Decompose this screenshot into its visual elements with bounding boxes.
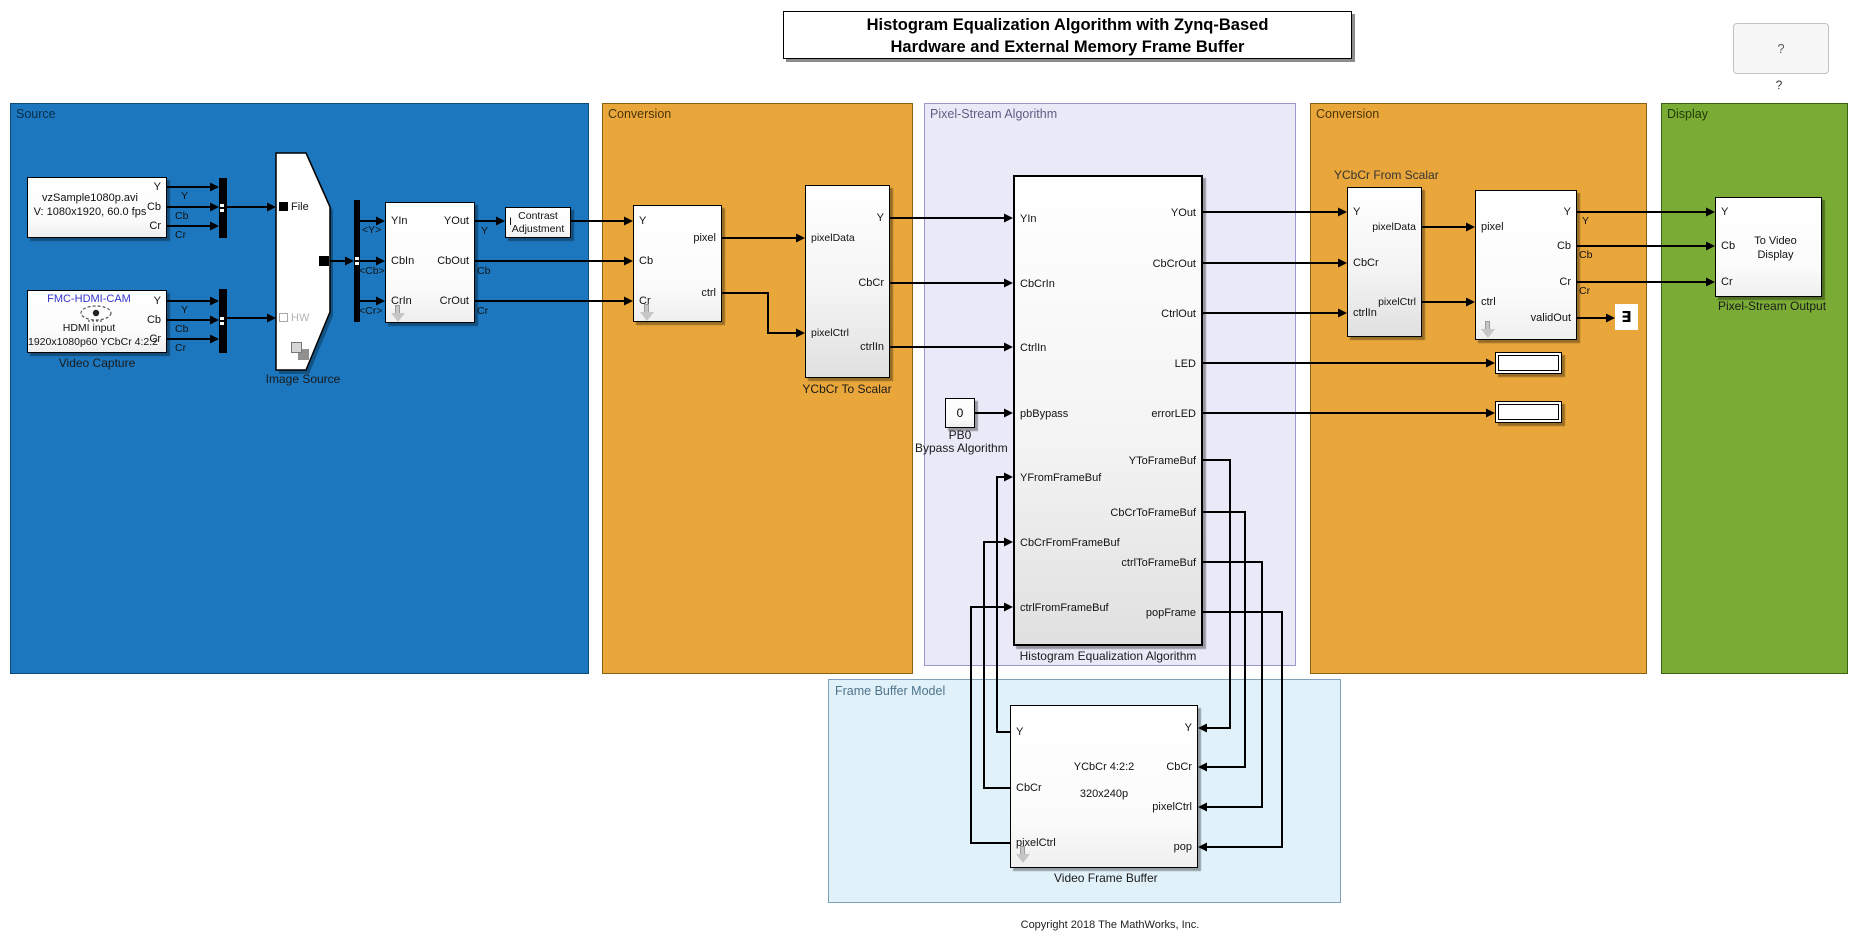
pb0-caption-1: PB0	[930, 428, 990, 442]
port-label-y: Y	[154, 182, 161, 193]
contrast-line2: Adjustment	[506, 223, 570, 235]
port-label-ctrlin: ctrlIn	[1353, 308, 1377, 319]
port-label-cbout: CbOut	[437, 256, 469, 267]
signal-label-disp-cr: Cr	[1579, 285, 1590, 297]
port-label-pixelctrl: pixelCtrl	[1378, 297, 1416, 308]
port-label-ctrl: ctrl	[701, 288, 716, 299]
port-label-ctrlfromfb: ctrlFromFrameBuf	[1020, 603, 1109, 614]
mux-source-file[interactable]	[219, 178, 227, 238]
bus-selector[interactable]	[354, 200, 360, 322]
led-display-inner	[1498, 355, 1559, 371]
port-label-cbcr: CbCr	[858, 278, 884, 289]
port-label-ctrltofb: ctrlToFrameBuf	[1121, 558, 1196, 569]
port-label-y: Y	[154, 296, 161, 307]
port-label-cr: Cr	[1559, 277, 1571, 288]
port-label-cb: Cb	[1557, 241, 1571, 252]
port-label-yin: YIn	[1020, 214, 1037, 225]
signal-label-src1-cb: Cb	[175, 210, 188, 222]
block-contrast-adjustment[interactable]: I Contrast Adjustment	[505, 207, 571, 238]
block-ycbcr422-select[interactable]: YIn CbIn CrIn YOut CbOut CrOut	[385, 202, 475, 323]
image-source-out-square	[319, 256, 329, 266]
port-label-ctrlin: CtrlIn	[1020, 343, 1046, 354]
block-video-frame-buffer[interactable]: Y CbCr pixelCtrl Y CbCr pixelCtrl pop YC…	[1010, 705, 1198, 868]
tvd-line1: To Video	[1730, 235, 1821, 247]
variant-arrow-icon	[1481, 321, 1496, 338]
vfb-line2: 320x240p	[1011, 788, 1197, 800]
port-label-cb: Cb	[147, 202, 161, 213]
file-port-label: File	[291, 201, 309, 213]
image-source-caption: Image Source	[253, 372, 353, 386]
signal-label-bus-cb: <Cb>	[359, 265, 385, 277]
port-label-cb: Cb	[147, 315, 161, 326]
port-label-crout: CrOut	[440, 296, 469, 307]
port-label-errorled: errorLED	[1151, 409, 1196, 420]
copyright-note: Copyright 2018 The MathWorks, Inc.	[1010, 919, 1210, 931]
signal-label-src2-cb: Cb	[175, 323, 188, 335]
signal-label-conv-cr: Cr	[477, 305, 488, 317]
signal-label-conv-y: Y	[481, 225, 488, 237]
signal-label-src2-cr: Cr	[175, 342, 186, 354]
port-label-ctrl: ctrl	[1481, 297, 1496, 308]
port-label-cr: Cr	[149, 221, 161, 232]
port-label-y: Y	[877, 213, 884, 224]
signal-label-src2-y: Y	[181, 304, 188, 316]
port-label-y: Y	[1564, 207, 1571, 218]
port-label-cbcrtofb: CbCrToFrameBuf	[1110, 508, 1196, 519]
pb0-caption-2: Bypass Algorithm	[915, 441, 1005, 455]
port-label-y-in: Y	[1185, 723, 1192, 734]
block-to-video-display[interactable]: Y Cb Cr To Video Display	[1715, 197, 1822, 297]
variant-arrow-icon	[1016, 846, 1031, 863]
mux-notch	[220, 204, 224, 207]
mux-notch	[220, 322, 224, 325]
contrast-line1: Contrast	[506, 210, 570, 222]
media-file-info: V: 1080x1920, 60.0 fps	[28, 206, 152, 218]
port-label-pixelctrl-in: pixelCtrl	[1152, 802, 1192, 813]
port-label-yout: YOut	[444, 216, 469, 227]
video-frame-buffer-caption: Video Frame Buffer	[1054, 871, 1154, 885]
camera-icon	[79, 305, 113, 323]
port-label-cbin: CbIn	[391, 256, 414, 267]
tvd-line2: Display	[1730, 249, 1821, 261]
signal-label-src1-y: Y	[181, 190, 188, 202]
ycbcr-to-scalar-caption: YCbCr To Scalar	[797, 382, 897, 396]
image-icon-front	[291, 342, 302, 353]
signal-label-src1-cr: Cr	[175, 229, 186, 241]
port-label-led: LED	[1175, 359, 1196, 370]
pixel-stream-output-caption: Pixel-Stream Output	[1718, 299, 1818, 313]
ycbcr-from-scalar-title: YCbCr From Scalar	[1334, 168, 1434, 182]
port-label-y: Y	[1016, 727, 1023, 738]
variant-arrow-icon	[640, 304, 655, 321]
port-label-pbbypass: pbBypass	[1020, 409, 1068, 420]
port-label-pixeldata: pixelData	[811, 233, 855, 244]
block-video-capture[interactable]: FMC-HDMI-CAM HDMI input 1920x1080p60 YCb…	[27, 290, 167, 353]
terminator-icon[interactable]: ∃	[1615, 304, 1638, 330]
video-capture-caption: Video Capture	[47, 356, 147, 370]
signal-label-disp-y: Y	[1582, 215, 1589, 227]
histeq-caption: Histogram Equalization Algorithm	[1008, 649, 1208, 663]
mux-notch	[220, 209, 224, 212]
port-label-yout: YOut	[1171, 208, 1196, 219]
signal-label-bus-y: <Y>	[362, 224, 381, 236]
mux-notch	[220, 317, 224, 320]
mux-notch	[355, 257, 359, 260]
variant-arrow-icon	[391, 305, 406, 322]
led-display[interactable]	[1495, 352, 1562, 374]
port-label-pixel: pixel	[1481, 222, 1504, 233]
block-histogram-equalization[interactable]: YIn CbCrIn CtrlIn pbBypass YFromFrameBuf…	[1013, 175, 1203, 646]
port-label-ytofb: YToFrameBuf	[1129, 456, 1196, 467]
signal-label-bus-cr: <Cr>	[359, 305, 382, 317]
port-label-y: Y	[1721, 207, 1728, 218]
signal-label-disp-cb: Cb	[1579, 249, 1592, 261]
port-label-y: Y	[1353, 207, 1360, 218]
simulink-model-canvas: Source Conversion Pixel-Stream Algorithm…	[0, 0, 1854, 944]
port-label-cr: Cr	[149, 334, 161, 345]
signal-label-conv-cb: Cb	[477, 265, 490, 277]
port-label-cbcrin: CbCrIn	[1020, 279, 1055, 290]
port-label-cbcrfromfb: CbCrFromFrameBuf	[1020, 538, 1120, 549]
port-label-cr: Cr	[1721, 277, 1733, 288]
block-frame-to-pixels[interactable]: Y Cb Cr pixel ctrl	[633, 205, 722, 322]
port-label-yin: YIn	[391, 216, 408, 227]
port-label-pixeldata: pixelData	[1372, 222, 1416, 233]
block-ycbcr-to-scalar[interactable]: pixelData pixelCtrl Y CbCr ctrlIn	[805, 185, 890, 378]
port-label-yfromfb: YFromFrameBuf	[1020, 473, 1101, 484]
port-label-pixel: pixel	[693, 233, 716, 244]
port-label-cbcr: CbCr	[1353, 258, 1379, 269]
block-ycbcr-from-scalar[interactable]: Y CbCr ctrlIn pixelData pixelCtrl	[1347, 187, 1422, 337]
block-from-multimedia-file[interactable]: vzSample1080p.avi V: 1080x1920, 60.0 fps…	[27, 177, 167, 238]
port-label-pixelctrl: pixelCtrl	[811, 328, 849, 339]
port-label-validout: validOut	[1531, 313, 1571, 324]
port-label-popframe: popFrame	[1146, 608, 1196, 619]
hw-port-square[interactable]	[279, 313, 288, 322]
error-led-display[interactable]	[1495, 401, 1562, 423]
video-capture-line2: 1920x1080p60 YCbCr 4:2:2	[28, 336, 158, 348]
port-label-ctrlin: ctrlIn	[860, 342, 884, 353]
port-label-ctrlout: CtrlOut	[1161, 309, 1196, 320]
media-file-name: vzSample1080p.avi	[28, 192, 152, 204]
file-port-square[interactable]	[279, 202, 288, 211]
port-label-cb: Cb	[639, 256, 653, 267]
constant-pb0[interactable]: 0	[945, 398, 975, 428]
video-capture-device: FMC-HDMI-CAM	[28, 293, 150, 305]
port-label-y: Y	[639, 216, 646, 227]
hw-port-label: HW	[291, 312, 309, 324]
vfb-line1: YCbCr 4:2:2	[1011, 761, 1197, 773]
led-display-inner	[1498, 404, 1559, 420]
mux-video-capture[interactable]	[219, 289, 227, 353]
block-pixels-to-frame[interactable]: pixel ctrl Y Cb Cr validOut	[1475, 190, 1577, 340]
port-label-pop: pop	[1174, 842, 1192, 853]
port-label-cbcrout: CbCrOut	[1153, 259, 1196, 270]
wiring-svg	[0, 0, 1854, 944]
video-capture-line1: HDMI input	[28, 322, 150, 334]
